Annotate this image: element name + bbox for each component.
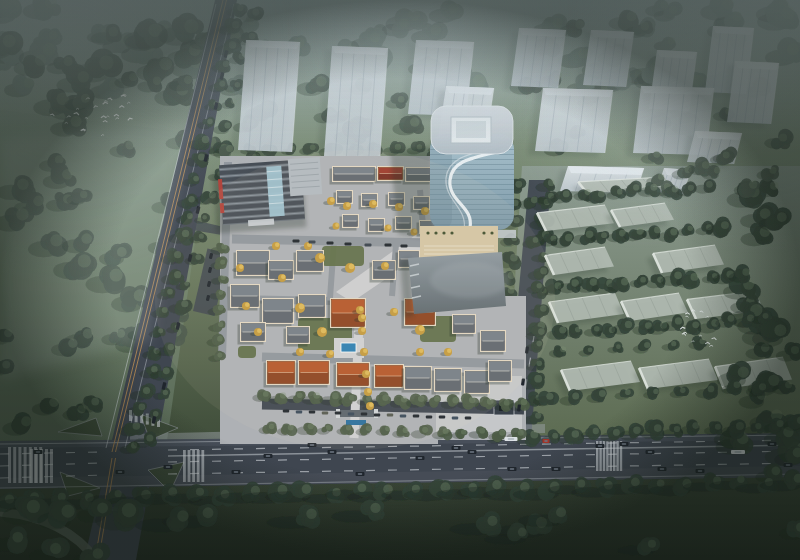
- aerial-rendering: [0, 0, 800, 560]
- vignette: [0, 0, 800, 560]
- scene-canvas: [0, 0, 800, 560]
